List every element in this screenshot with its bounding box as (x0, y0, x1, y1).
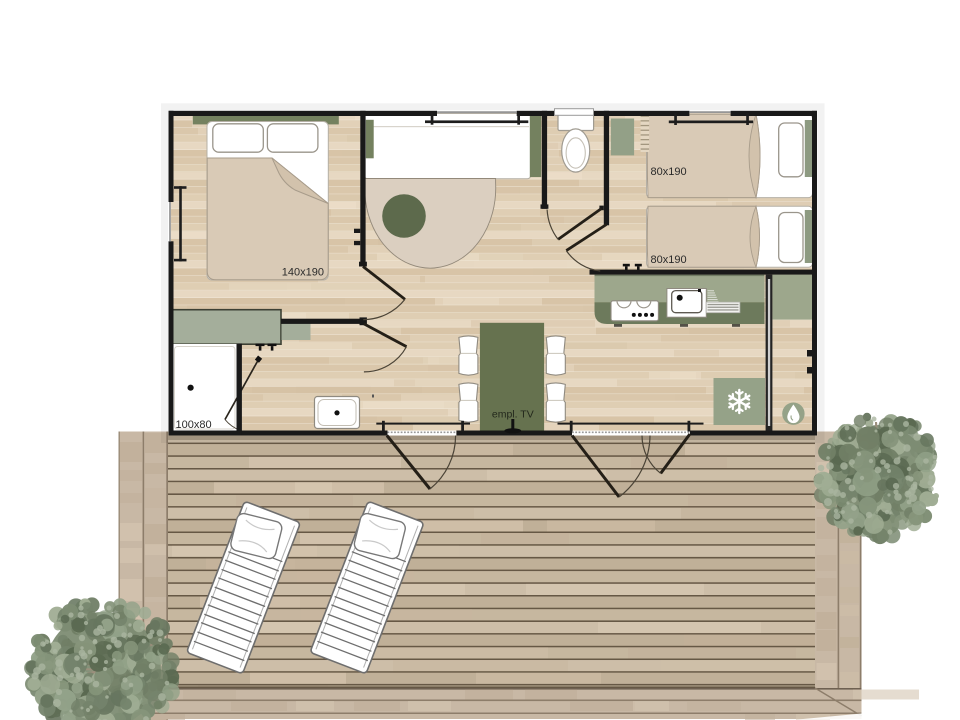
svg-text:80x190: 80x190 (651, 166, 687, 178)
svg-text:140x190: 140x190 (282, 267, 324, 279)
svg-text:100x80: 100x80 (176, 419, 212, 431)
svg-text:empl. TV: empl. TV (492, 409, 534, 421)
svg-text:80x190: 80x190 (651, 254, 687, 266)
